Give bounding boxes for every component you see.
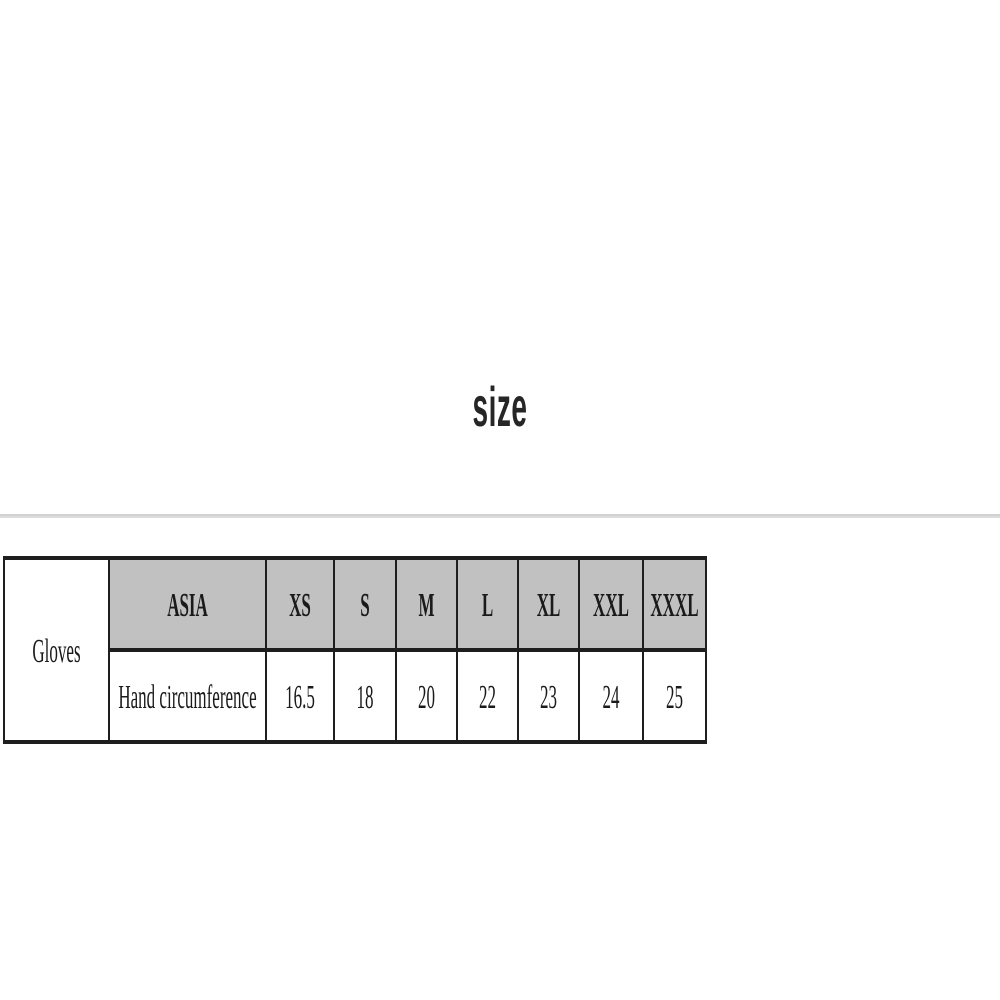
size-header-cell-xs: XS [266, 558, 334, 650]
page-title: size [0, 378, 1000, 438]
measurement-value-cell-xxl: 24 [579, 650, 643, 742]
section-divider [0, 514, 1000, 518]
measurement-value-cell-xxxl: 25 [643, 650, 706, 742]
page: size Gloves ASIA XS S M L XL XXL XX [0, 0, 1000, 1000]
measurement-value-cell-xl: 23 [518, 650, 579, 742]
measurement-value-cell-m: 20 [396, 650, 457, 742]
size-chart-table: Gloves ASIA XS S M L XL XXL XXXL Hand ci… [3, 556, 707, 744]
size-header-cell-xxl: XXL [579, 558, 643, 650]
measurement-value-cell-s: 18 [334, 650, 396, 742]
size-header-cell-xxxl: XXXL [643, 558, 706, 650]
size-header-cell-m: M [396, 558, 457, 650]
category-cell: Gloves [4, 558, 109, 742]
measurement-label-cell: Hand circumference [109, 650, 266, 742]
size-header-cell-s: S [334, 558, 396, 650]
size-header-cell-xl: XL [518, 558, 579, 650]
measurement-value-cell-l: 22 [457, 650, 518, 742]
size-header-cell-l: L [457, 558, 518, 650]
measurement-row: Hand circumference 16.5 18 20 22 23 24 2… [4, 650, 706, 742]
header-row: Gloves ASIA XS S M L XL XXL XXXL [4, 558, 706, 650]
measurement-value-cell-xs: 16.5 [266, 650, 334, 742]
region-header-cell: ASIA [109, 558, 266, 650]
